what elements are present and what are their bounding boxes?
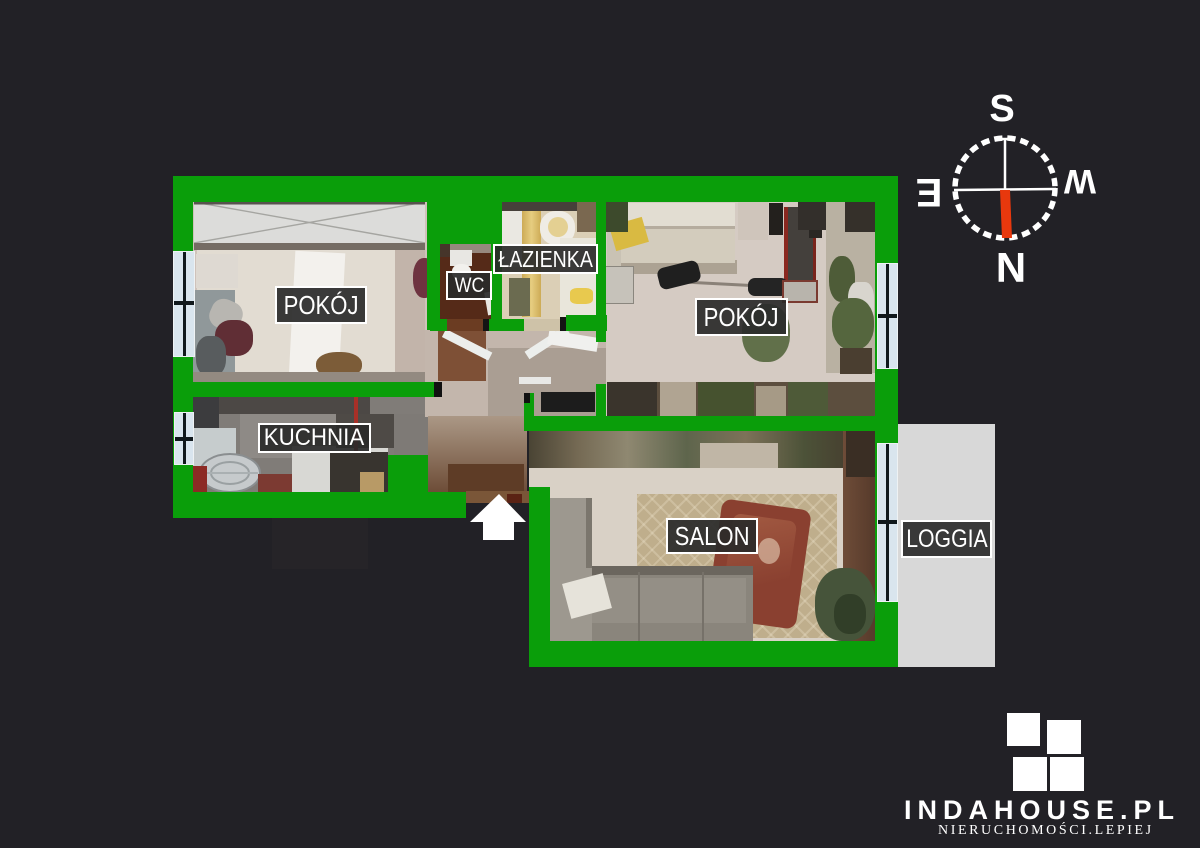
svg-text:S: S [989,88,1014,130]
svg-text:W: W [1063,162,1096,200]
svg-text:N: N [996,244,1026,291]
svg-text:E: E [916,170,943,214]
